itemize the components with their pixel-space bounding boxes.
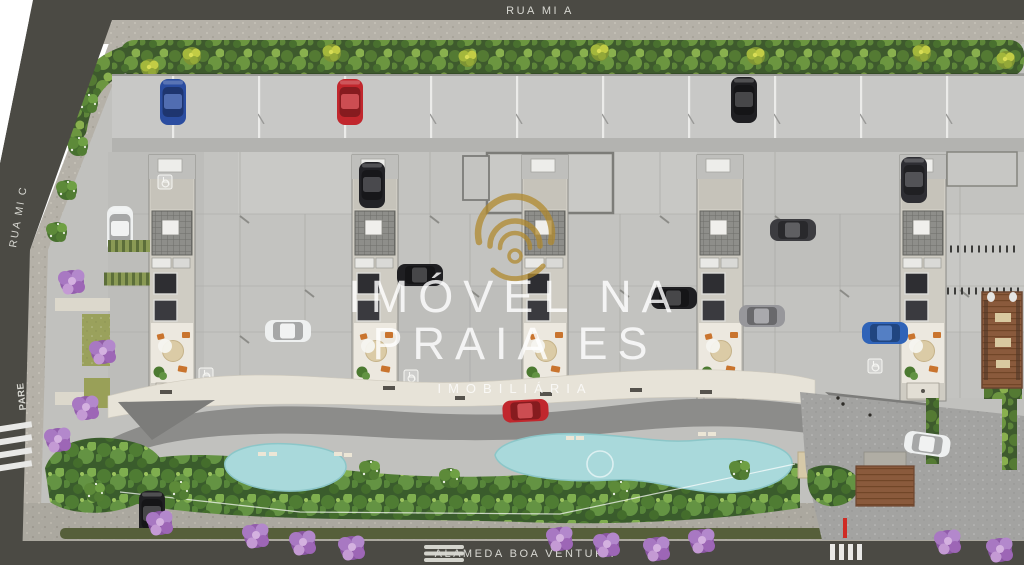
entry-gate-marker xyxy=(843,518,847,538)
car-dark xyxy=(901,157,927,203)
brick-amenity-deck xyxy=(982,292,1022,388)
street-label-bottom: ALAMEDA BOA VENTURA xyxy=(435,548,616,560)
car-black xyxy=(397,264,443,286)
car-black xyxy=(359,162,385,208)
car-blue xyxy=(160,79,186,125)
car-white xyxy=(265,320,311,342)
street-label-top: RUA MI A xyxy=(506,5,574,17)
top-parking-strip xyxy=(112,74,1024,154)
car-black xyxy=(651,287,697,309)
car-blue xyxy=(862,322,908,344)
unit-spine xyxy=(149,155,195,401)
masterplan-illustration: RUA MI A RUA MI C ALAMEDA BOA VENTURA PA… xyxy=(0,0,1024,565)
car-black xyxy=(731,77,757,123)
wheelchair-icon xyxy=(158,175,172,189)
guard-deck xyxy=(856,466,914,506)
wheelchair-icon xyxy=(868,359,882,373)
car-dark xyxy=(770,219,816,241)
car-red-driving xyxy=(502,399,549,423)
car-gray xyxy=(739,305,785,327)
site-plan-graphic: RUA MI A RUA MI C ALAMEDA BOA VENTURA PA… xyxy=(0,0,1024,565)
car-red xyxy=(337,79,363,125)
